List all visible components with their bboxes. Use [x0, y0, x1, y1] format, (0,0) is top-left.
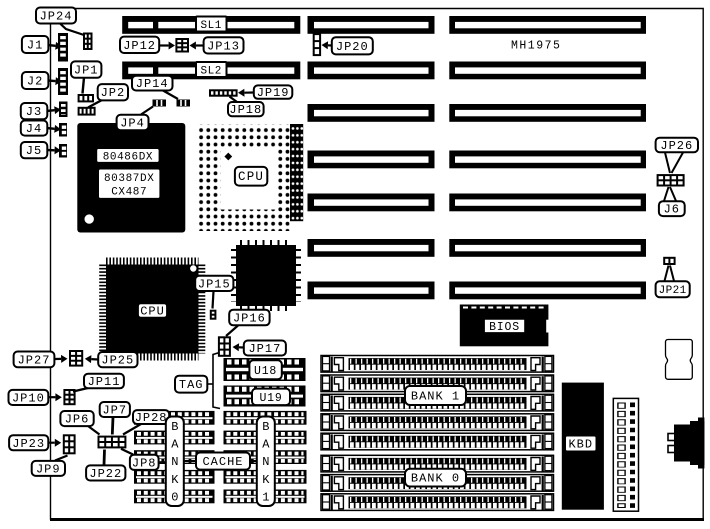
svg-text:JP25: JP25 — [101, 354, 134, 368]
svg-text:J2: J2 — [27, 75, 43, 89]
svg-text:SL2: SL2 — [201, 66, 222, 78]
svg-text:JP10: JP10 — [12, 391, 45, 405]
svg-text:BANK 0: BANK 0 — [411, 472, 460, 486]
svg-text:JP13: JP13 — [207, 39, 240, 53]
svg-text:MH1975: MH1975 — [511, 40, 561, 53]
svg-text:J1: J1 — [27, 39, 43, 53]
svg-text:JP9: JP9 — [36, 462, 61, 476]
svg-text:0: 0 — [171, 490, 178, 504]
svg-text:80387DX: 80387DX — [104, 173, 154, 185]
svg-text:JP27: JP27 — [18, 353, 51, 367]
svg-text:80486DX: 80486DX — [103, 151, 153, 163]
svg-text:JP23: JP23 — [12, 437, 45, 451]
svg-text:A: A — [262, 438, 270, 452]
svg-text:JP11: JP11 — [88, 375, 121, 389]
svg-text:JP26: JP26 — [660, 139, 693, 153]
svg-text:JP21: JP21 — [659, 285, 687, 297]
svg-text:CX487: CX487 — [111, 187, 147, 199]
svg-text:A: A — [171, 438, 179, 452]
svg-text:BIOS: BIOS — [489, 321, 520, 334]
svg-text:J4: J4 — [26, 122, 42, 136]
svg-text:KBD: KBD — [568, 438, 593, 452]
svg-text:JP28: JP28 — [135, 411, 168, 425]
svg-text:CPU: CPU — [238, 170, 264, 184]
svg-text:1: 1 — [262, 490, 269, 504]
svg-text:N: N — [171, 455, 178, 469]
svg-text:N: N — [262, 455, 269, 469]
svg-text:JP2: JP2 — [101, 86, 126, 100]
svg-text:B: B — [171, 420, 178, 434]
svg-text:JP24: JP24 — [40, 10, 73, 24]
svg-text:U19: U19 — [259, 392, 282, 405]
svg-text:SL1: SL1 — [201, 20, 222, 32]
svg-text:JP12: JP12 — [123, 39, 156, 53]
svg-text:CPU: CPU — [140, 305, 165, 319]
svg-text:CACHE: CACHE — [202, 455, 243, 469]
svg-text:J5: J5 — [26, 144, 42, 158]
svg-text:JP15: JP15 — [198, 277, 231, 291]
svg-text:J6: J6 — [664, 203, 680, 217]
svg-text:JP22: JP22 — [89, 467, 122, 481]
svg-text:JP18: JP18 — [229, 103, 262, 117]
svg-text:K: K — [171, 473, 179, 487]
svg-text:K: K — [262, 473, 270, 487]
svg-text:JP19: JP19 — [257, 86, 290, 100]
svg-text:JP16: JP16 — [233, 312, 266, 326]
svg-text:U18: U18 — [254, 365, 277, 378]
svg-text:JP6: JP6 — [65, 413, 90, 427]
svg-text:J3: J3 — [26, 105, 42, 119]
svg-text:JP4: JP4 — [120, 117, 145, 131]
svg-text:JP14: JP14 — [136, 77, 169, 91]
svg-text:JP17: JP17 — [248, 342, 281, 356]
svg-text:JP8: JP8 — [132, 456, 157, 470]
svg-text:B: B — [262, 420, 269, 434]
svg-text:JP7: JP7 — [102, 404, 127, 418]
svg-text:JP20: JP20 — [336, 40, 369, 54]
svg-text:TAG: TAG — [179, 378, 204, 392]
svg-text:BANK 1: BANK 1 — [411, 390, 460, 404]
svg-text:JP1: JP1 — [74, 64, 99, 78]
